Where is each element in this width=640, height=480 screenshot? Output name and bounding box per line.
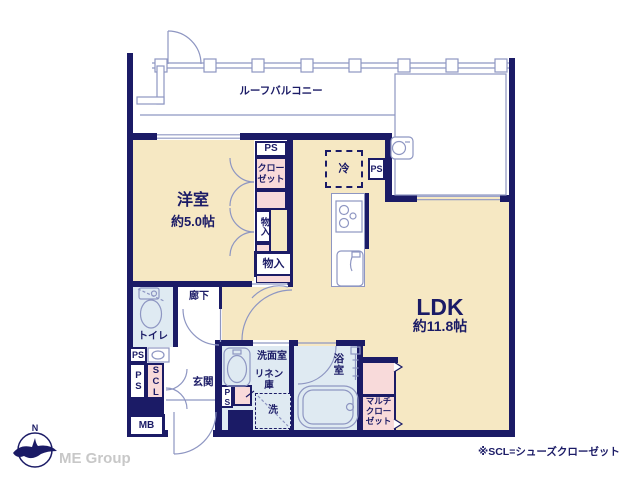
entrance-label: 玄関 [180,376,226,388]
shower-bar-icon [351,347,360,380]
linen-label: リネン庫 [253,369,285,391]
washroom-label: 洗面室 [244,351,300,363]
railing-posts [155,59,507,72]
bathroom-label: 浴室 [332,349,344,379]
western-room-name: 洋室 [153,192,233,211]
toilet-sink-icon [148,348,169,362]
western-room-size: 約5.0帖 [153,214,233,229]
ldk-window [417,196,500,199]
balcony-right-area [395,74,506,195]
folding-door-chevrons [394,362,402,429]
stove-icon [336,201,362,232]
hallway-label: 廊下 [178,291,220,303]
floor-plan: PS クローゼット 物入 物入 冷 PS PS PS SCL MB PS 洗 [0,0,640,480]
scl-note: ※SCL=シューズクローゼット [478,446,628,458]
slop-sink-icon [391,137,413,159]
compass-north-label: N [29,423,41,434]
bathtub-icon [298,386,358,428]
plan-linework [0,0,640,480]
washer-mark [258,396,288,426]
company-logo-text: ME Group [59,450,149,468]
kitchen-sink-icon [337,251,363,286]
ldk-size: 約11.8帖 [395,318,485,335]
compass-logo-icon [13,433,57,467]
multi-closet-label: マルチクローゼット [363,396,394,426]
toilet-icon [138,288,164,328]
balcony-label: ルーフバルコニー [228,85,334,97]
western-room-window [157,135,240,138]
toilet-label: トイレ [133,331,173,343]
linen-pointer [246,391,254,397]
